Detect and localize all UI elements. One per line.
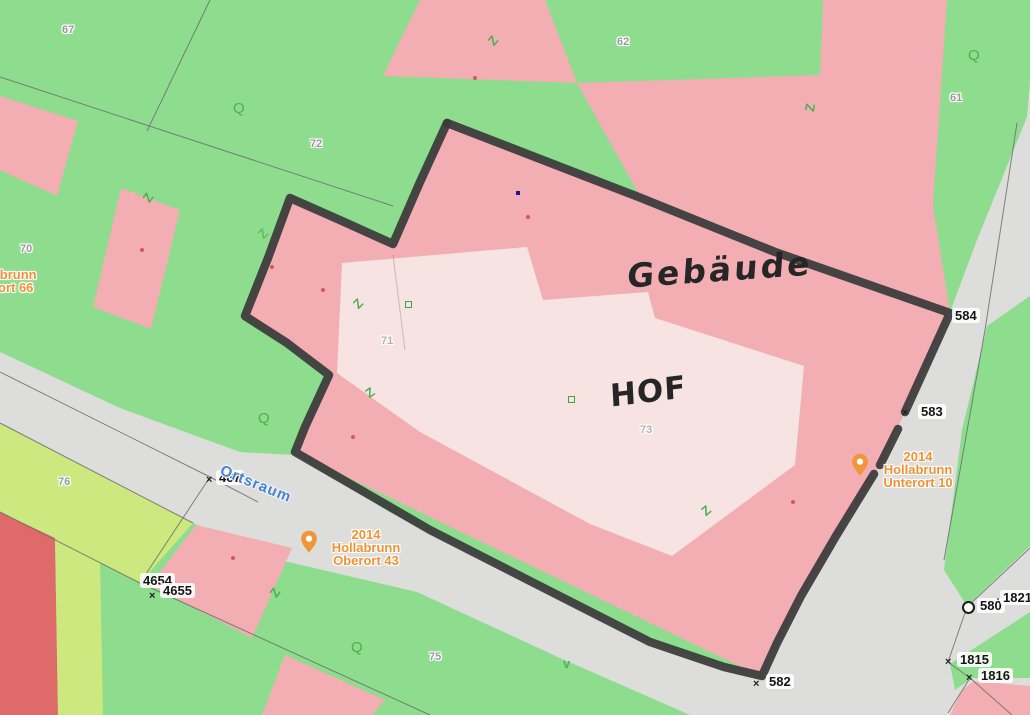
survey-cross-icon: × xyxy=(206,475,212,485)
map-canvas[interactable]: Z Z Z Z Z Z Z Z Q Q Q Q v 67 72 62 61 70… xyxy=(0,0,1030,715)
survey-point-583: 583 xyxy=(918,404,946,419)
vegetation-v-icon: v xyxy=(563,656,570,671)
point-dot xyxy=(231,556,235,560)
survey-cross-icon: × xyxy=(945,657,951,667)
point-dot xyxy=(140,248,144,252)
parcel-pink-tl1 xyxy=(0,96,78,196)
parcel-pink-top-band xyxy=(383,0,577,83)
point-dot xyxy=(270,265,274,269)
address-line2: ort 66 xyxy=(0,281,37,294)
parcel-number-62: 62 xyxy=(617,36,629,48)
address-line2: Oberort 43 xyxy=(318,554,414,567)
vegetation-q-icon: Q xyxy=(351,639,363,656)
survey-cross-icon: × xyxy=(902,408,908,418)
parcel-pink-tl2 xyxy=(93,188,180,329)
survey-point-4655: 4655 xyxy=(160,583,195,598)
survey-point-1815: 1815 xyxy=(957,652,992,667)
point-dot xyxy=(351,435,355,439)
address-line1: 2014 Hollabrunn xyxy=(318,528,414,554)
parcel-pink-c2 xyxy=(262,655,385,715)
survey-cross-icon: × xyxy=(966,673,972,683)
symbol-square-icon xyxy=(405,301,412,308)
point-dot xyxy=(473,76,477,80)
address-pin-icon[interactable] xyxy=(300,530,318,554)
address-pin-icon[interactable] xyxy=(851,453,869,477)
point-dot xyxy=(526,215,530,219)
address-label-unterort-10[interactable]: 2014 Hollabrunn Unterort 10 xyxy=(869,450,967,489)
address-line1: 2014 Hollabrunn xyxy=(869,450,967,476)
vegetation-q-icon: Q xyxy=(233,100,245,117)
parcel-lime-strip xyxy=(55,538,103,715)
parcel-number-72: 72 xyxy=(310,138,322,150)
parcel-number-71: 71 xyxy=(381,335,393,347)
address-label-oberort-43[interactable]: 2014 Hollabrunn Oberort 43 xyxy=(318,528,414,567)
address-line2: Unterort 10 xyxy=(869,476,967,489)
symbol-square-icon xyxy=(568,396,575,403)
vegetation-q-icon: Q xyxy=(258,410,270,427)
parcel-number-73: 73 xyxy=(640,424,652,436)
parcel-number-76: 76 xyxy=(58,476,70,488)
parcel-number-75: 75 xyxy=(429,651,441,663)
point-dot xyxy=(321,288,325,292)
parcel-number-67: 67 xyxy=(62,24,74,36)
survey-point-582: 582 xyxy=(766,674,794,689)
survey-circle-icon xyxy=(962,601,975,614)
parcel-number-70: 70 xyxy=(20,243,32,255)
survey-point-1816: 1816 xyxy=(978,668,1013,683)
survey-point-584: 584 xyxy=(952,308,980,323)
parcel-number-61: 61 xyxy=(950,92,962,104)
vegetation-q-icon: Q xyxy=(968,47,980,64)
parcel-dark-red xyxy=(0,512,58,715)
survey-tick xyxy=(997,598,999,600)
point-dot-navy xyxy=(516,191,520,195)
survey-point-1821: 1821 xyxy=(1000,590,1030,605)
point-dot xyxy=(791,500,795,504)
map-layers xyxy=(0,0,1030,715)
survey-cross-icon: × xyxy=(149,591,155,601)
address-label-ort-66-clipped[interactable]: Hollabrunn ort 66 xyxy=(0,268,37,294)
survey-cross-icon: × xyxy=(753,679,759,689)
